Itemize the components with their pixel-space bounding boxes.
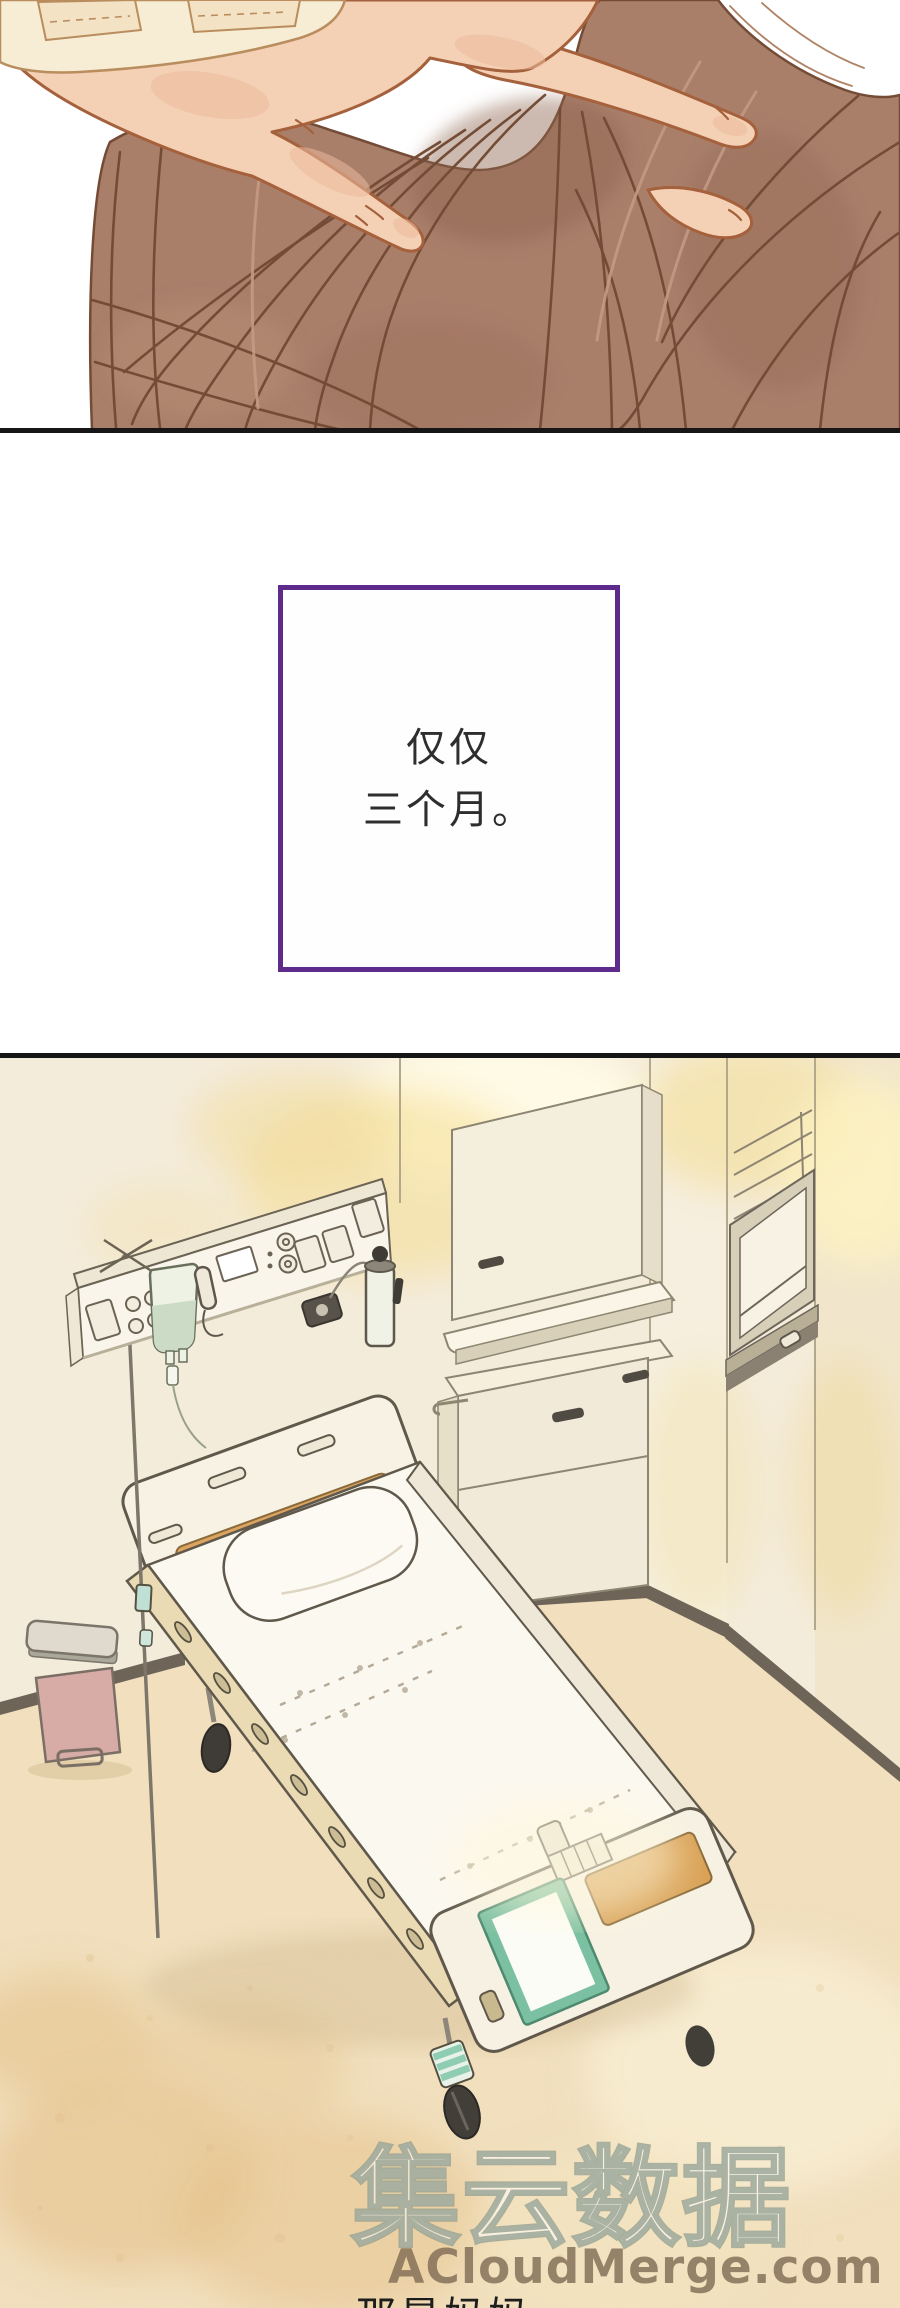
top-panel-illustration [0, 0, 900, 430]
drip-chamber [167, 1366, 178, 1385]
pole-clamp-small [140, 1630, 153, 1647]
bottom-caption: 那是妈妈 [356, 2284, 532, 2308]
pole-clamp [135, 1585, 151, 1612]
comic-page: 仅仅 三个月。 [0, 0, 900, 2308]
bed-glare [450, 1796, 680, 1920]
panel-divider-top [0, 428, 900, 433]
narration-line-2: 三个月。 [363, 779, 535, 841]
narration-box: 仅仅 三个月。 [278, 585, 620, 972]
trash-can-shadow [28, 1760, 132, 1780]
hospital-room-illustration [0, 1058, 900, 2308]
narration-text: 仅仅 三个月。 [363, 717, 535, 841]
trash-can-body [36, 1668, 120, 1762]
narration-line-1: 仅仅 [363, 717, 535, 779]
trash-can-lid [26, 1620, 118, 1658]
upper-cabinet-side [642, 1085, 662, 1285]
